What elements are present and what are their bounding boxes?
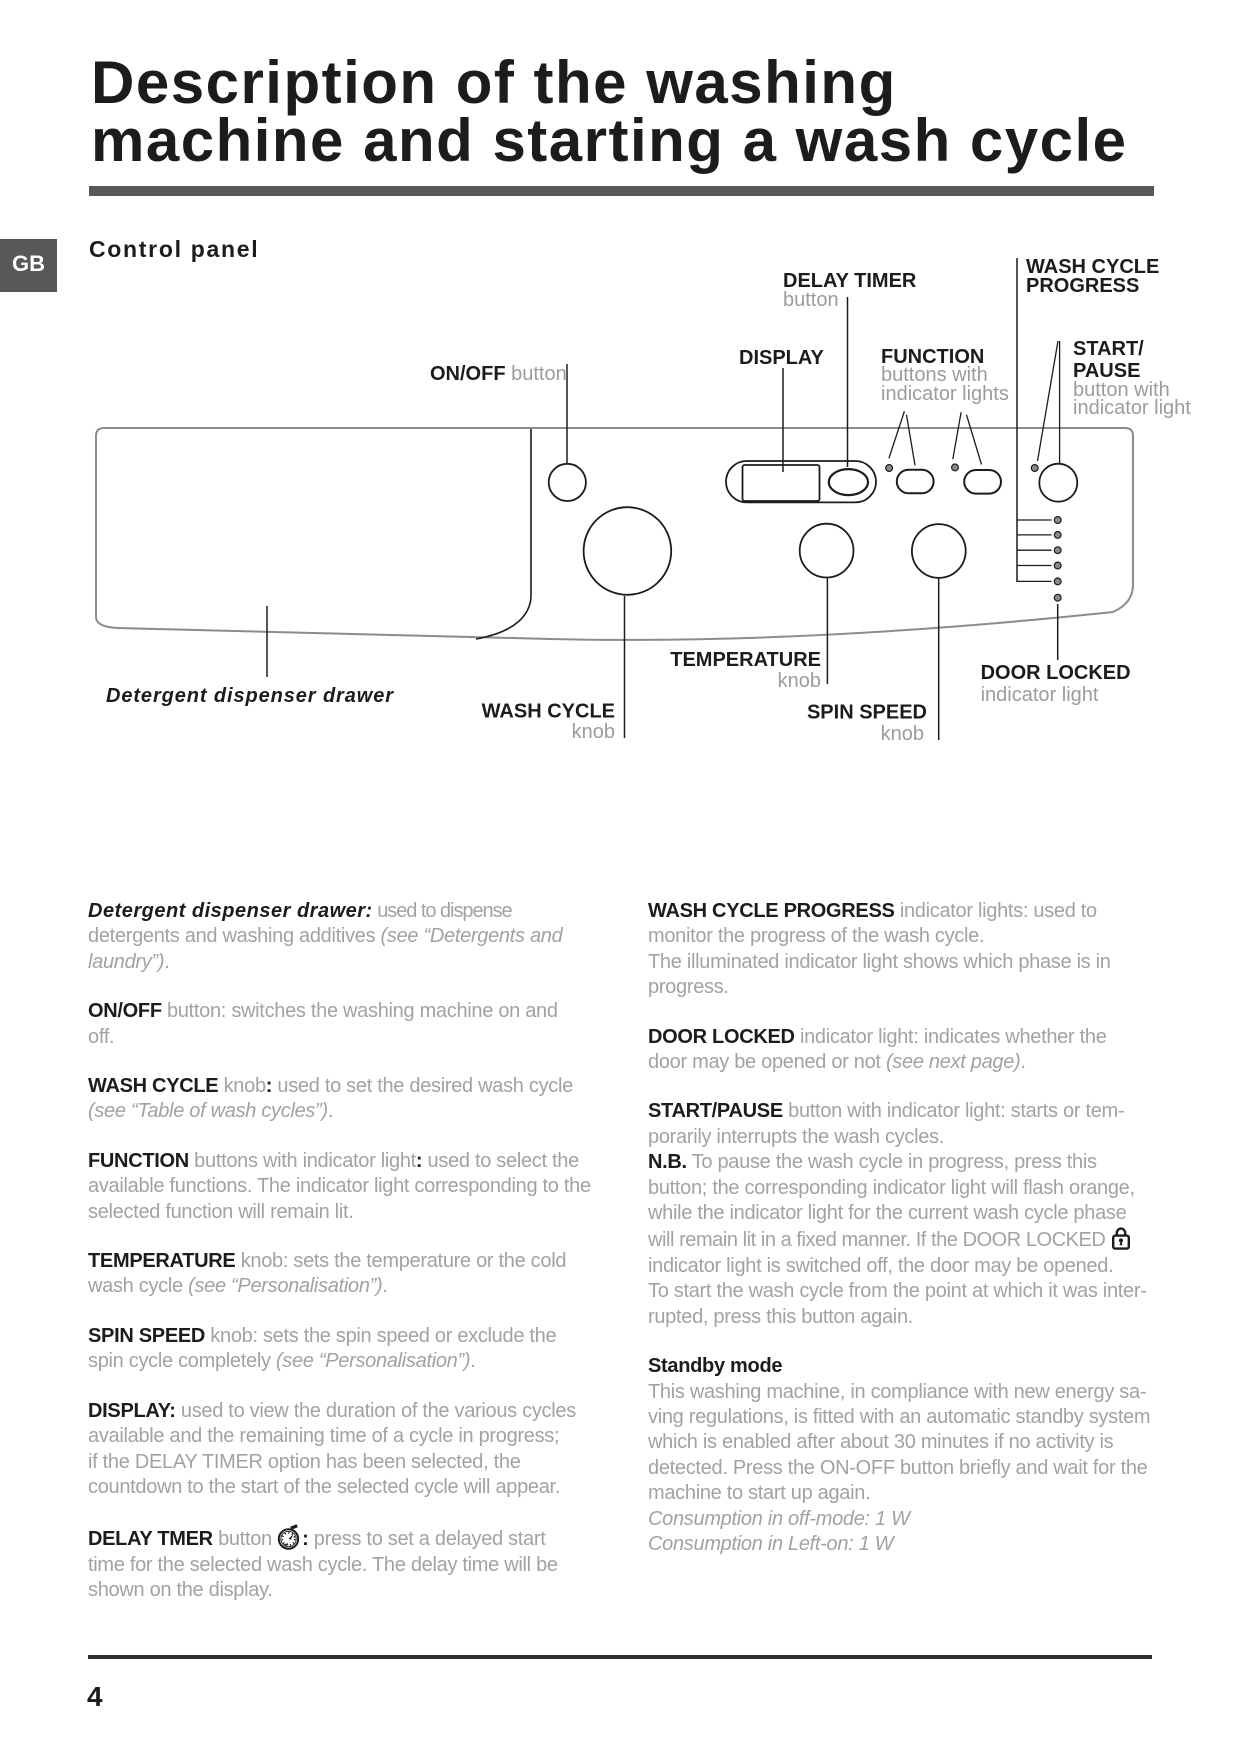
svg-text:WASH CYCLE: WASH CYCLE: [482, 701, 615, 723]
svg-text:DISPLAY: DISPLAY: [739, 347, 825, 369]
svg-text:knob: knob: [881, 723, 924, 745]
svg-text:Detergent dispenser drawer: Detergent dispenser drawer: [106, 685, 394, 707]
svg-text:knob: knob: [778, 670, 821, 692]
svg-text:button: button: [783, 289, 839, 311]
svg-text:DOOR LOCKED: DOOR LOCKED: [981, 662, 1131, 684]
svg-text:indicator lights: indicator lights: [881, 383, 1009, 405]
svg-text:ON/OFF button: ON/OFF button: [430, 363, 567, 385]
svg-text:TEMPERATURE: TEMPERATURE: [670, 649, 821, 671]
svg-text:indicator light: indicator light: [1073, 397, 1191, 419]
svg-text:START/: START/: [1073, 338, 1144, 360]
svg-text:knob: knob: [572, 721, 615, 743]
svg-text:SPIN SPEED: SPIN SPEED: [807, 702, 927, 724]
svg-text:indicator light: indicator light: [981, 684, 1099, 706]
svg-text:PROGRESS: PROGRESS: [1026, 275, 1139, 297]
